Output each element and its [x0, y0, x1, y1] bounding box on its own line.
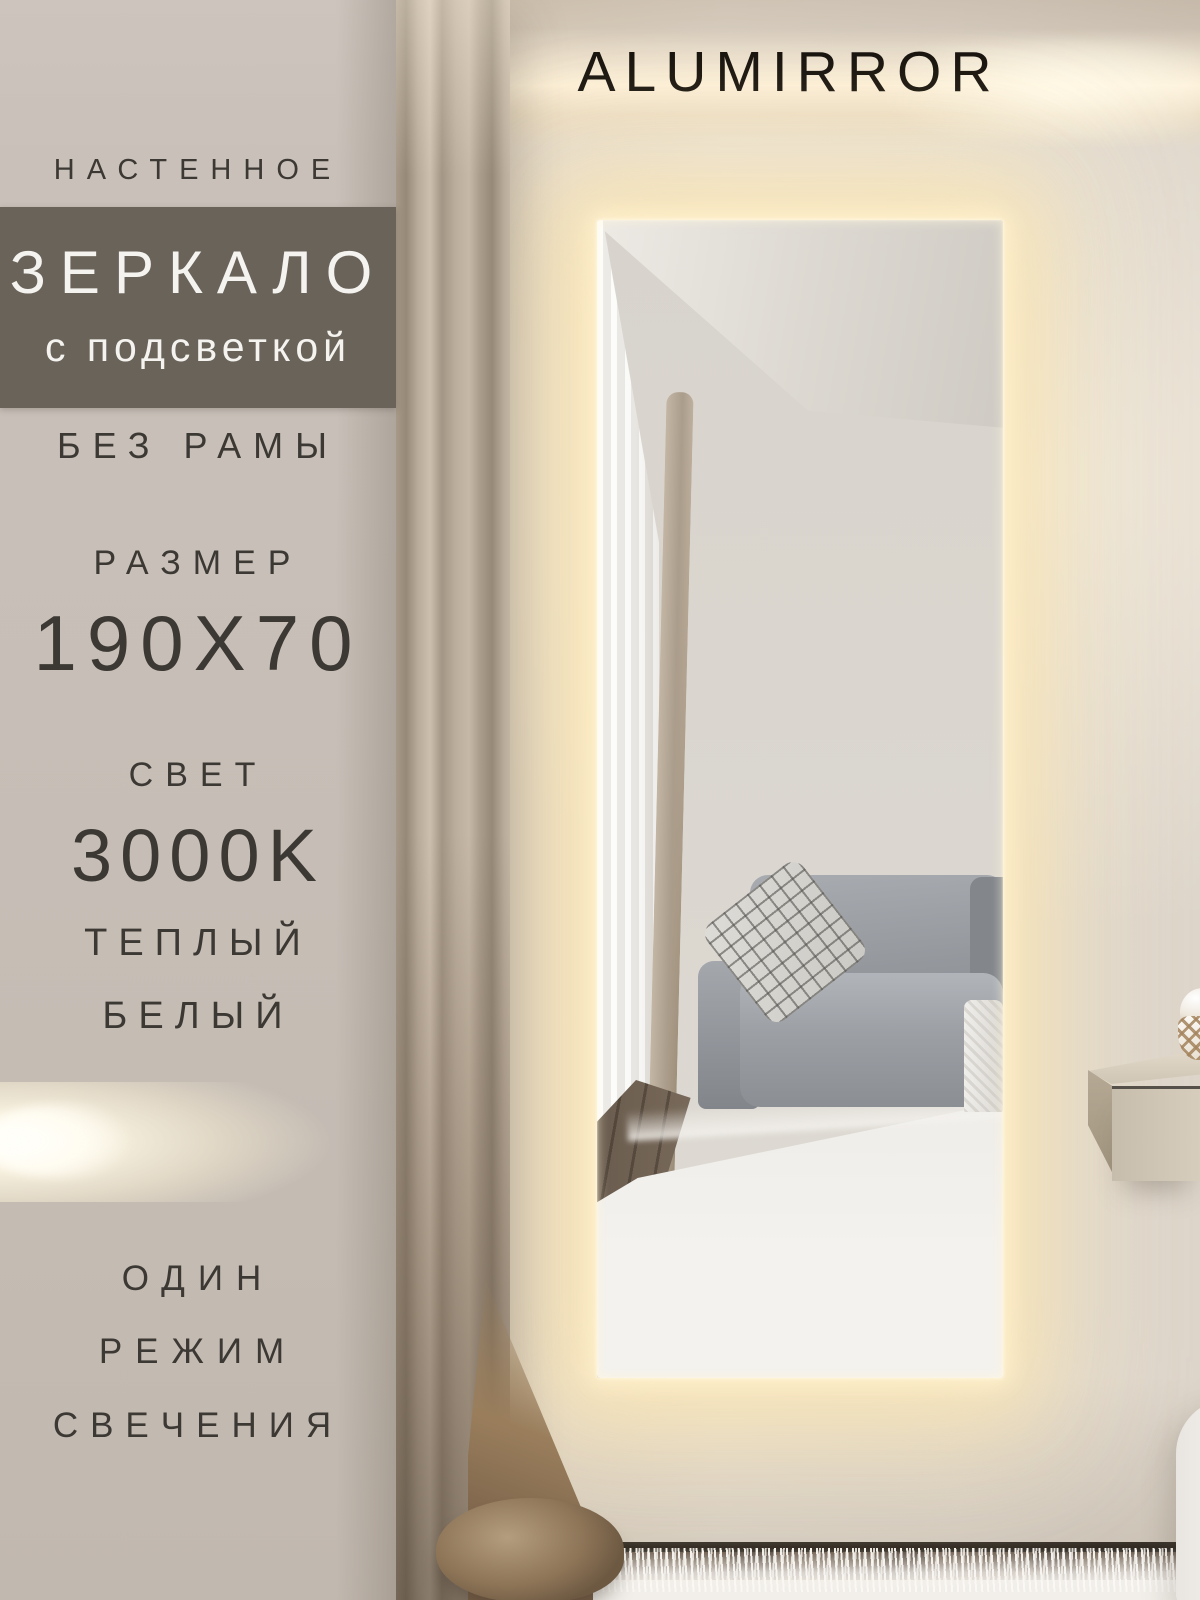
product-title: ЗЕРКАЛО	[0, 243, 396, 303]
kicker-label: НАСТЕННОЕ	[0, 156, 396, 185]
mode-line-2: РЕЖИМ	[0, 1334, 396, 1369]
mode-line-1: ОДИН	[0, 1261, 396, 1296]
light-temperature-value: 3000K	[0, 819, 396, 893]
floating-nightstand	[1112, 1086, 1200, 1181]
title-banner: ЗЕРКАЛО с подсветкой	[0, 207, 396, 408]
frameless-label: БЕЗ РАМЫ	[0, 428, 396, 464]
knit-blanket	[964, 1000, 1003, 1112]
light-label: СВЕТ	[0, 758, 396, 792]
reflection-ceiling	[597, 220, 1003, 432]
reflection-armchair	[692, 865, 1003, 1110]
led-mirror	[597, 220, 1003, 1378]
size-label: РАЗМЕР	[0, 546, 396, 580]
mode-line-3: СВЕЧЕНИЯ	[0, 1408, 396, 1443]
light-tone-line-1: ТЕПЛЫЙ	[0, 924, 396, 962]
curtain-pool	[436, 1498, 624, 1600]
product-card: ALUMIRROR НАСТЕННОЕ ЗЕРКАЛО с подсветк	[0, 0, 1200, 1600]
product-subtitle: с подсветкой	[0, 327, 396, 368]
brand-logo: ALUMIRROR	[489, 44, 1089, 101]
size-value: 190X70	[0, 604, 396, 682]
light-tone-line-2: БЕЛЫЙ	[0, 997, 396, 1035]
